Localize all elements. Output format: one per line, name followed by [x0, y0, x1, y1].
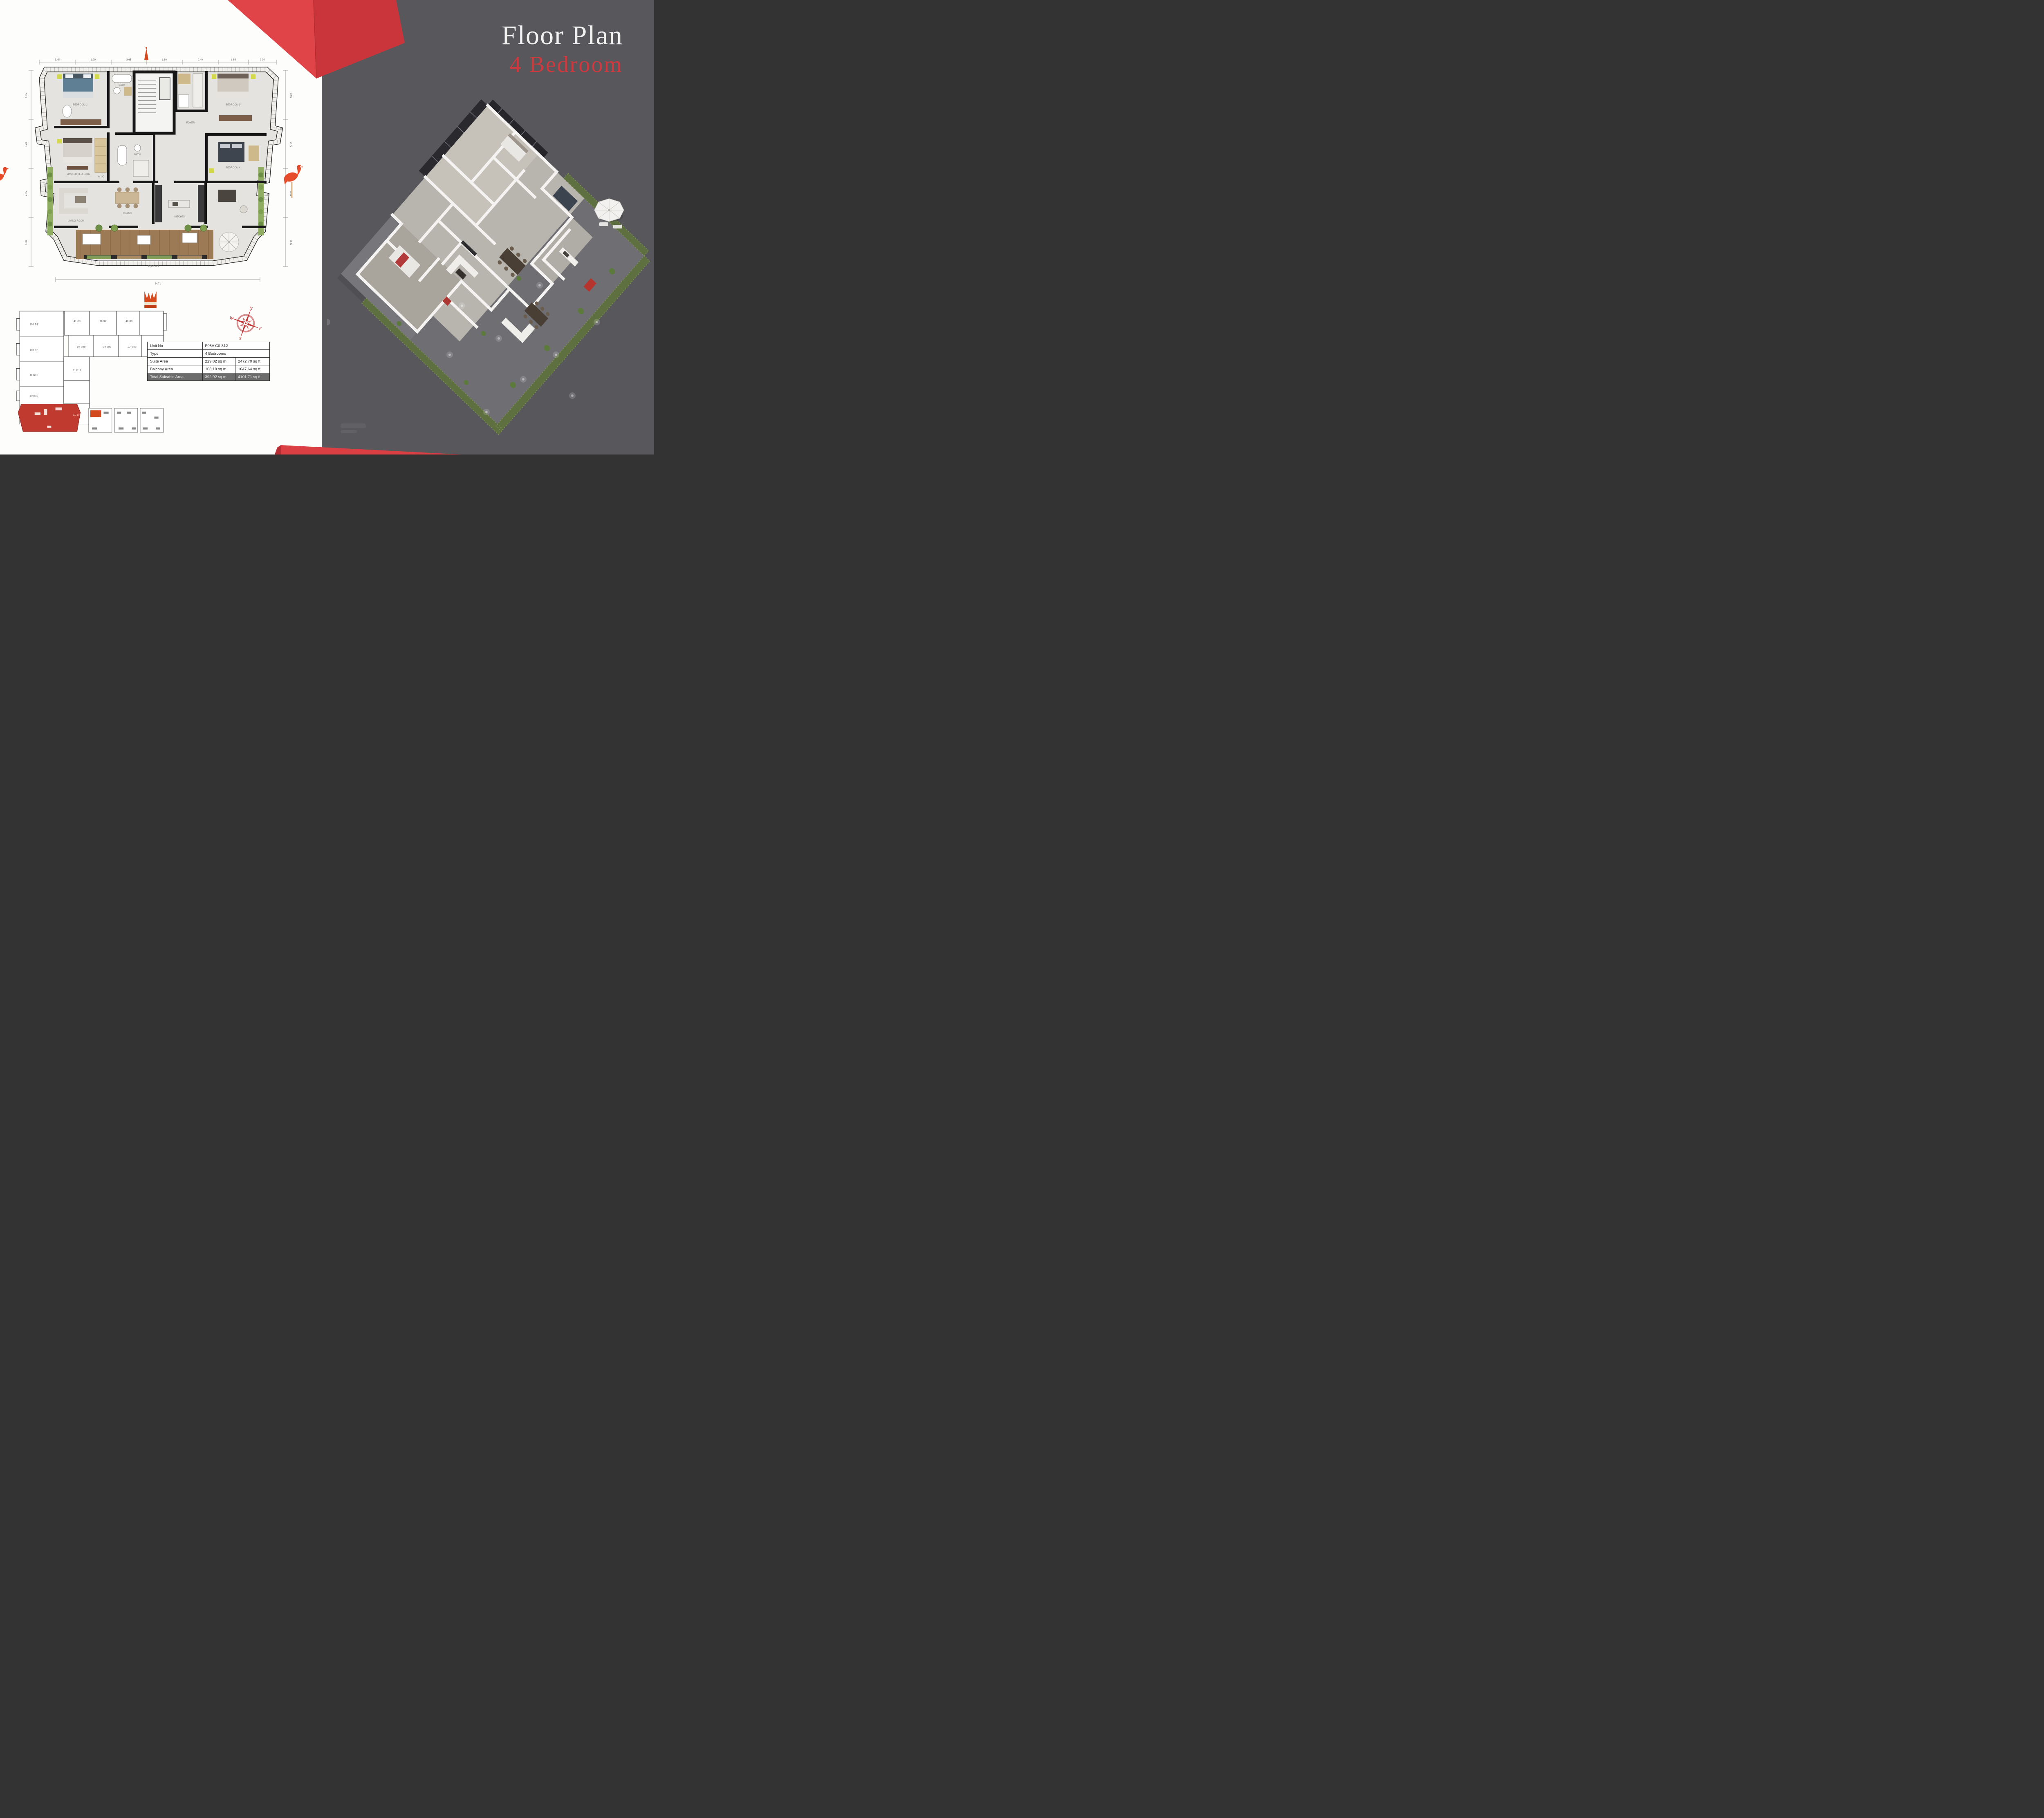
page-title: Floor Plan	[502, 21, 623, 49]
outdoor-daybed	[83, 234, 101, 244]
unit-info-table: Unit No F08A C0-812 Type 4 Bedrooms Suit…	[147, 342, 270, 381]
total-area-sqm: 392.92 sq m	[202, 373, 235, 381]
svg-text:W: W	[229, 316, 234, 321]
svg-text:10+888: 10+888	[127, 346, 137, 349]
kitchen-counter	[155, 185, 162, 222]
svg-text:40-88: 40-88	[126, 320, 132, 323]
elevator	[159, 78, 170, 100]
balcony-area-sqft: 1647.64 sq ft	[235, 365, 270, 373]
svg-text:DINING: DINING	[123, 213, 132, 215]
key-plan: 101 B1 101 B2 41-88 B 888 40-88 B7 888 B…	[15, 307, 168, 435]
bath-cabinet	[124, 87, 132, 96]
svg-text:3.95: 3.95	[289, 93, 292, 98]
svg-text:3.20: 3.20	[25, 142, 28, 147]
svg-text:101 B1: 101 B1	[29, 323, 38, 326]
outdoor-table	[137, 235, 150, 244]
svg-text:11 101: 11 101	[73, 414, 81, 416]
svg-text:3.40: 3.40	[289, 240, 292, 245]
compass-icon: N S W E	[228, 306, 263, 341]
svg-text:FOYER: FOYER	[186, 122, 195, 124]
outdoor-lounger	[182, 233, 197, 243]
type-value: 4 Bedrooms	[202, 350, 269, 358]
flamingo-left-partial-icon	[0, 164, 12, 197]
bed2-duvet	[63, 78, 93, 92]
brochure-page: BEDROOM 2 BATH FOYER BEDROOM 3 MASTER BE…	[0, 0, 654, 454]
bathtub	[112, 74, 132, 83]
watermark-bar	[341, 430, 357, 433]
bed-bench	[67, 166, 88, 170]
crown-icon	[143, 290, 158, 308]
flamingo-icon	[281, 162, 307, 199]
svg-text:41-88: 41-88	[74, 320, 81, 323]
red-wedge-bottom	[266, 441, 478, 454]
svg-text:1.80: 1.80	[162, 59, 167, 61]
table-row: Suite Area 229.82 sq m 2472.70 sq ft	[148, 358, 270, 365]
svg-text:B9 888: B9 888	[103, 346, 111, 349]
svg-text:2.70: 2.70	[289, 142, 292, 147]
svg-text:11 D10: 11 D10	[29, 374, 38, 377]
type-label: Type	[148, 350, 203, 358]
svg-text:2.85: 2.85	[25, 191, 28, 196]
table-row: Unit No F08A C0-812	[148, 342, 270, 350]
watermark-bar	[341, 423, 366, 428]
svg-text:24.71: 24.71	[155, 283, 161, 285]
svg-text:W.I.C: W.I.C	[98, 176, 104, 178]
table-row-total: Total Saleable Area 392.92 sq m 4101.71 …	[148, 373, 270, 381]
red-ribbon-top	[221, 0, 413, 86]
balcony-area-sqm: 163.10 sq m	[202, 365, 235, 373]
coffee-table	[75, 196, 86, 203]
page-title-block: Floor Plan 4 Bedroom	[502, 21, 623, 77]
parasol-icon	[219, 232, 239, 252]
svg-text:KITCHEN: KITCHEN	[175, 216, 185, 218]
svg-text:TERRACE: TERRACE	[148, 266, 160, 268]
svg-text:BATH: BATH	[119, 84, 125, 87]
floor-plan-3d	[327, 93, 654, 449]
svg-text:E: E	[258, 326, 262, 331]
svg-text:3.60: 3.60	[25, 240, 28, 245]
total-area-sqft: 4101.71 sq ft	[235, 373, 270, 381]
lounge-piano	[218, 190, 236, 202]
svg-text:BEDROOM 4: BEDROOM 4	[226, 167, 241, 169]
svg-text:B 888: B 888	[100, 320, 108, 323]
svg-text:MASTER BEDROOM: MASTER BEDROOM	[67, 173, 90, 176]
nightstand-accent	[57, 74, 62, 79]
suite-area-sqm: 229.82 sq m	[202, 358, 235, 365]
svg-text:3.45: 3.45	[55, 59, 60, 61]
svg-text:4.05: 4.05	[25, 93, 28, 98]
svg-text:2.40: 2.40	[198, 59, 203, 61]
svg-text:101 B2: 101 B2	[29, 349, 38, 352]
balcony-area-label: Balcony Area	[148, 365, 203, 373]
dresser	[61, 119, 101, 125]
spire-icon	[144, 47, 148, 60]
svg-text:B7 888: B7 888	[77, 346, 85, 349]
svg-text:BEDROOM 3: BEDROOM 3	[226, 104, 241, 106]
svg-text:LIVING ROOM: LIVING ROOM	[68, 220, 84, 222]
svg-text:N: N	[249, 306, 253, 311]
total-area-label: Total Saleable Area	[148, 373, 203, 381]
legend-red-chip	[90, 410, 101, 417]
svg-text:BEDROOM 2: BEDROOM 2	[73, 104, 88, 106]
unit-no-value: F08A C0-812	[202, 342, 269, 350]
unit-no-label: Unit No	[148, 342, 203, 350]
suite-area-label: Suite Area	[148, 358, 203, 365]
suite-area-sqft: 2472.70 sq ft	[235, 358, 270, 365]
svg-text:1.20: 1.20	[91, 59, 96, 61]
table-row: Type 4 Bedrooms	[148, 350, 270, 358]
svg-text:BATH: BATH	[134, 154, 141, 156]
page-subtitle: 4 Bedroom	[502, 53, 623, 77]
dining-table	[115, 192, 139, 204]
kitchen-island	[168, 200, 190, 208]
svg-text:10 B10: 10 B10	[29, 394, 38, 397]
table-row: Balcony Area 163.10 sq m 1647.64 sq ft	[148, 365, 270, 373]
svg-text:S: S	[238, 336, 242, 341]
svg-text:11 D11: 11 D11	[73, 369, 81, 372]
svg-text:3.65: 3.65	[126, 59, 131, 61]
